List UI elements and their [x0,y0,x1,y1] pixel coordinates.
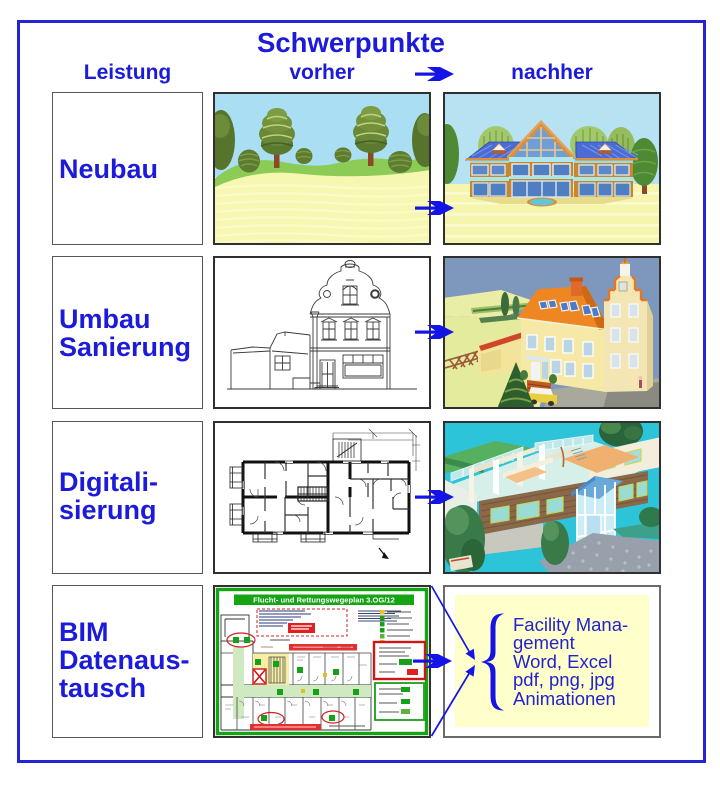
svg-text:Flucht- und Rettungswegeplan: Flucht- und Rettungswegeplan 3.OG/12 [253,596,395,605]
